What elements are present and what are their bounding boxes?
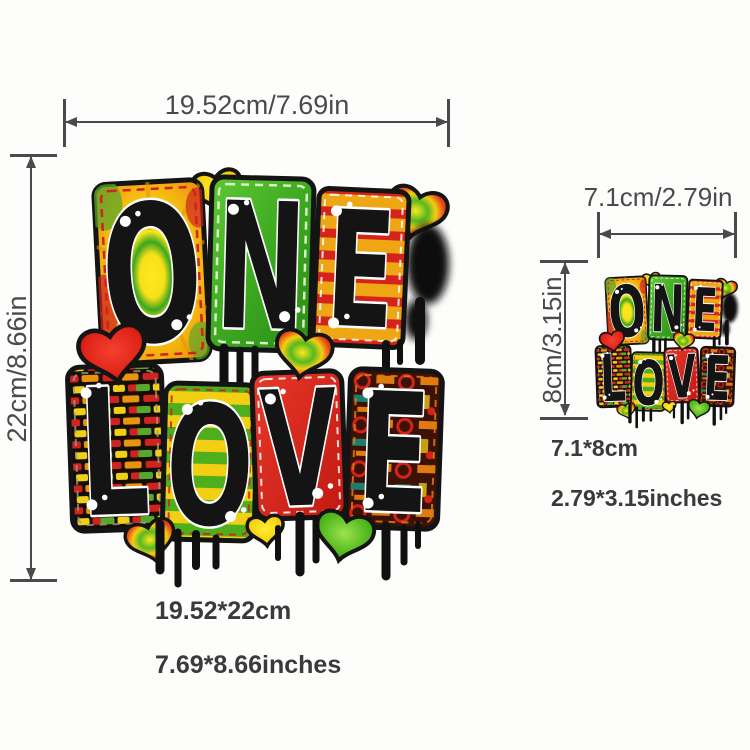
- main-size-cm: 19.52*22cm: [155, 597, 291, 625]
- main-size-inches: 7.69*8.66inches: [155, 651, 341, 679]
- product-image-main: [64, 152, 460, 592]
- small-size-cm: 7.1*8cm: [551, 435, 638, 461]
- small-width-arrow: [600, 233, 734, 235]
- main-height-dimension-label: 22cm/8.66in: [2, 179, 32, 559]
- main-width-dimension-label: 19.52cm/7.69in: [66, 90, 448, 121]
- small-size-inches: 2.79*3.15inches: [551, 485, 722, 511]
- small-size-caption: 7.1*8cm 2.79*3.15inches: [551, 436, 722, 511]
- main-width-arrow: [66, 121, 447, 123]
- small-width-dimension-label: 7.1cm/2.79in: [568, 182, 748, 213]
- main-size-caption: 19.52*22cm 7.69*8.66inches: [155, 598, 341, 679]
- product-dimension-image: O N E: [0, 0, 750, 750]
- product-image-small: [594, 266, 742, 430]
